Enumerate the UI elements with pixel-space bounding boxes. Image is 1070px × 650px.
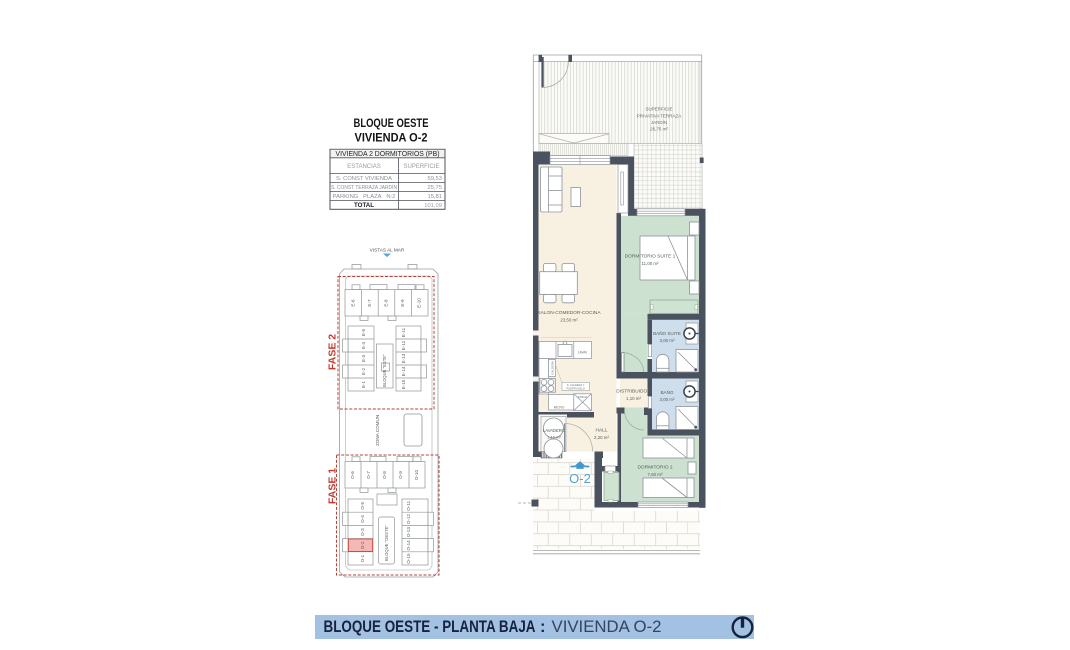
svg-text:E-12: E-12	[401, 340, 406, 350]
svg-text:E-4: E-4	[361, 341, 366, 349]
svg-text:E-1: E-1	[361, 380, 366, 388]
svg-text:O-4: O-4	[360, 515, 365, 523]
svg-text:O-5: O-5	[360, 502, 365, 510]
svg-text:BLOQUE OESTE: BLOQUE OESTE	[354, 118, 429, 130]
svg-text:MICRO: MICRO	[554, 406, 565, 410]
svg-text:LAVADERO: LAVADERO	[543, 428, 566, 433]
svg-text:E-2: E-2	[361, 367, 366, 375]
svg-text:ZONA COMUN: ZONA COMUN	[375, 415, 380, 446]
svg-text:O-14: O-14	[406, 540, 411, 551]
svg-text:23,50 m²: 23,50 m²	[560, 318, 578, 323]
svg-text:26,75 m²: 26,75 m²	[650, 127, 668, 132]
svg-text:E-6: E-6	[351, 299, 356, 307]
svg-text:O-2: O-2	[360, 541, 365, 549]
svg-text:1,10 m²: 1,10 m²	[547, 435, 561, 440]
svg-text:E-5: E-5	[361, 328, 366, 336]
svg-text:O-6: O-6	[350, 471, 355, 479]
svg-text:O-2: O-2	[569, 471, 591, 486]
svg-text:VIVIENDA O-2: VIVIENDA O-2	[355, 133, 428, 145]
svg-text:2,20 m²: 2,20 m²	[594, 435, 609, 440]
svg-text:15,81: 15,81	[427, 194, 442, 200]
svg-text:ESTANCIAS: ESTANCIAS	[347, 164, 381, 170]
svg-text:S. CONST VIVIENDA: S. CONST VIVIENDA	[336, 176, 392, 182]
svg-text:3,00 m²: 3,00 m²	[660, 338, 675, 343]
svg-text:E-15: E-15	[401, 379, 406, 389]
svg-text:E-14: E-14	[401, 366, 406, 376]
svg-text:SALON-COMEDOR-COCINA: SALON-COMEDOR-COCINA	[537, 310, 601, 316]
svg-text:O-8: O-8	[382, 471, 387, 479]
svg-text:FASE 1: FASE 1	[327, 468, 339, 504]
svg-text:BLOQUE OESTE - PLANTA BAJA:VIV: BLOQUE OESTE - PLANTA BAJA:VIVIENDA O-2	[324, 618, 662, 636]
svg-text:O-9: O-9	[398, 471, 403, 479]
svg-text:101,09: 101,09	[424, 203, 442, 209]
svg-text:O-7: O-7	[366, 471, 371, 479]
svg-text:BAÑO: BAÑO	[660, 389, 673, 395]
svg-text:E-7: E-7	[367, 299, 372, 307]
svg-text:O-12: O-12	[406, 513, 411, 524]
svg-text:LAVAV: LAVAV	[578, 351, 588, 355]
svg-text:11,00 m²: 11,00 m²	[641, 261, 659, 266]
svg-text:DORMITORIO SUITE 1: DORMITORIO SUITE 1	[625, 254, 676, 260]
svg-text:59,53: 59,53	[427, 176, 442, 182]
svg-text:E-9: E-9	[400, 299, 405, 307]
svg-text:HALL: HALL	[596, 428, 608, 434]
svg-text:E-13: E-13	[401, 353, 406, 363]
svg-text:O-10: O-10	[414, 469, 419, 480]
svg-text:E-3: E-3	[361, 354, 366, 362]
svg-text:E-8: E-8	[384, 299, 389, 307]
svg-text:BAÑO SUITE: BAÑO SUITE	[653, 330, 681, 336]
svg-text:FASE 2: FASE 2	[327, 334, 339, 370]
svg-text:CALDERA: CALDERA	[550, 361, 554, 374]
svg-text:SUPERFICIE: SUPERFICIE	[645, 107, 672, 112]
svg-text:S. CONST TERRAZA JARDÍN: S. CONST TERRAZA JARDÍN	[331, 184, 397, 191]
svg-text:O-15: O-15	[406, 553, 411, 564]
svg-text:SUPERFICIE: SUPERFICIE	[403, 164, 439, 170]
svg-text:VIVIENDA 2 DORMITORIOS (PB): VIVIENDA 2 DORMITORIOS (PB)	[336, 149, 440, 158]
svg-text:BLOQUE "OESTE": BLOQUE "OESTE"	[384, 525, 389, 561]
svg-text:3,00 m²: 3,00 m²	[660, 397, 675, 402]
svg-text:FRIGO: FRIGO	[578, 395, 588, 399]
svg-text:VISTAS AL MAR: VISTAS AL MAR	[370, 248, 405, 253]
svg-text:1,10 m²: 1,10 m²	[626, 396, 641, 401]
svg-text:E-11: E-11	[401, 327, 406, 337]
svg-text:O-1: O-1	[360, 554, 365, 562]
svg-text:25,75: 25,75	[427, 185, 442, 191]
svg-text:PUERTA AISLO: PUERTA AISLO	[567, 387, 585, 391]
svg-text:TOTAL: TOTAL	[354, 202, 374, 209]
svg-text:JARDÍN: JARDÍN	[651, 119, 667, 125]
svg-text:O-13: O-13	[406, 527, 411, 538]
svg-text:PARKING PLAZA N:2: PARKING PLAZA N:2	[333, 194, 396, 200]
svg-text:E-10: E-10	[417, 298, 422, 308]
svg-text:PRIVATIVA TERRAZA: PRIVATIVA TERRAZA	[637, 114, 681, 119]
svg-text:7,60 m²: 7,60 m²	[648, 472, 663, 477]
svg-text:O-3: O-3	[360, 528, 365, 536]
svg-text:BLOQUE "ESTE": BLOQUE "ESTE"	[382, 354, 387, 387]
svg-text:O-11: O-11	[406, 500, 411, 510]
svg-text:DORMITORIO 2: DORMITORIO 2	[637, 465, 672, 471]
svg-text:DISTRIBUIDOR: DISTRIBUIDOR	[616, 389, 651, 395]
